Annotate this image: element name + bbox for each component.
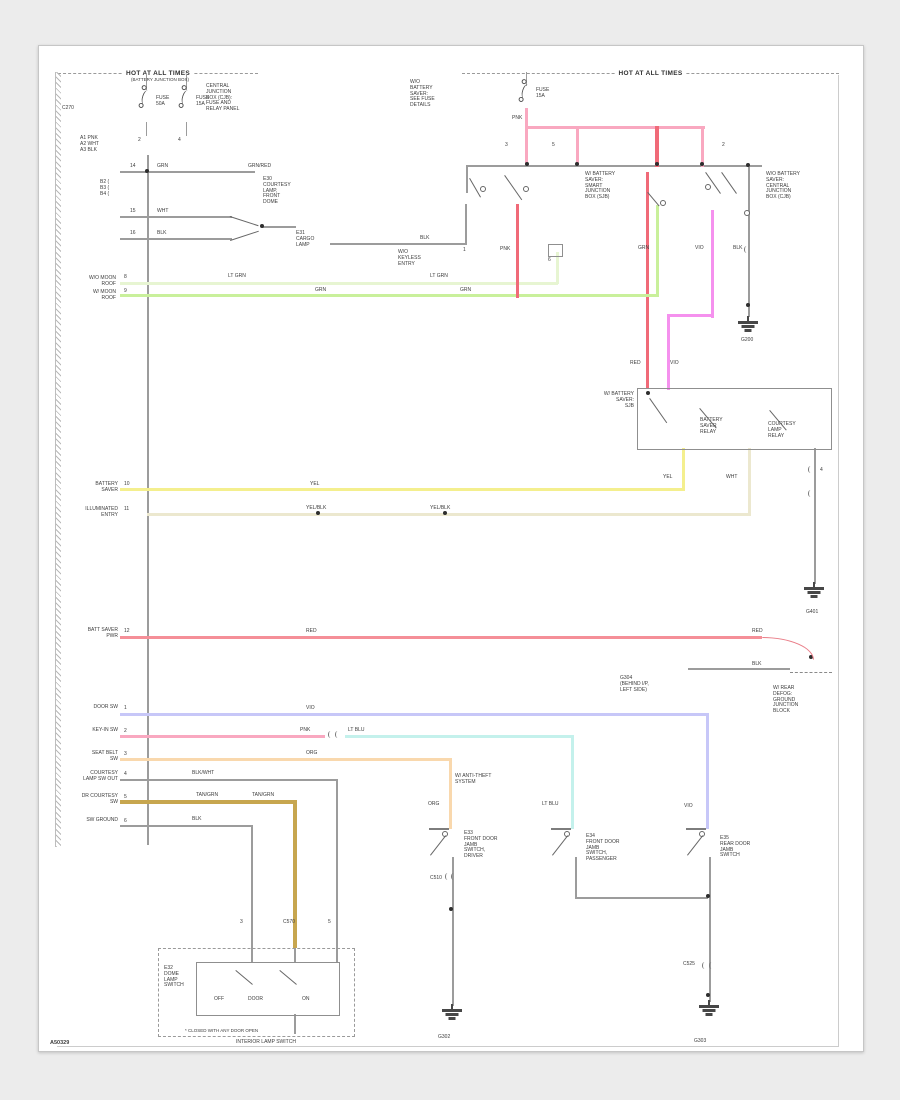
wire <box>576 126 579 165</box>
wire-label: 6 <box>124 819 127 825</box>
wire-label: GRN <box>157 164 168 170</box>
wire-label: 5 <box>328 920 331 926</box>
wire-label: RED <box>752 629 763 635</box>
junction-dot <box>443 511 447 515</box>
wire-label: 5 <box>552 143 555 149</box>
junction-dot <box>706 894 710 898</box>
wire-label: KEY-IN SW <box>56 728 118 734</box>
connector-mark <box>808 466 813 473</box>
wire-label: 15 <box>130 209 136 215</box>
wire-label: VIO <box>306 706 315 712</box>
wire <box>345 735 574 738</box>
wire-label: VIO <box>670 361 679 367</box>
wire <box>120 636 762 639</box>
wire <box>120 800 296 804</box>
connector-mark <box>335 731 340 738</box>
wire-label: 8 <box>124 275 127 281</box>
wire-label: C525 <box>683 962 695 968</box>
wire <box>466 165 762 167</box>
wire-label: DOOR <box>248 997 263 1003</box>
wire-label: FUSE 15A <box>536 88 549 100</box>
wire-label: 4 <box>124 772 127 778</box>
wire-label: 4 <box>178 138 181 144</box>
wire-label: BLK <box>192 817 201 823</box>
diagram-code: A50329 <box>50 1040 69 1046</box>
ground-icon <box>696 1000 722 1018</box>
ground-icon <box>801 582 827 600</box>
wire-label: E33 FRONT DOOR JAMB SWITCH, DRIVER <box>464 831 498 860</box>
wire-label: W/O BATTERY SAVER: SEE FUSE DETAILS <box>410 80 435 109</box>
wire-label: BLK <box>733 246 742 252</box>
door-jamb-switch-icon <box>429 828 457 858</box>
wire-label: LT GRN <box>430 274 448 280</box>
wire-label: G401 <box>806 610 818 616</box>
diagram-caption: INTERIOR LAMP SWITCH <box>196 1040 336 1046</box>
connector-mark <box>702 962 707 969</box>
wire <box>336 779 338 948</box>
wire-label: 2 <box>722 143 725 149</box>
junction-dot <box>525 162 529 166</box>
wire-label: TAN/GRN <box>196 793 218 799</box>
wire-label: DOOR SW <box>56 705 118 711</box>
wire <box>682 448 685 490</box>
wire <box>655 126 659 167</box>
wire-label: 9 <box>124 289 127 295</box>
wire <box>571 735 574 829</box>
junction-dot <box>655 162 659 166</box>
wire-label: GRN <box>315 288 326 294</box>
wire-label: W/ MOON ROOF <box>58 290 116 302</box>
wire <box>186 122 187 136</box>
wire-label: YEL <box>663 475 672 481</box>
wire-label: RED <box>306 629 317 635</box>
wire <box>465 204 467 245</box>
wire-label: ON <box>302 997 310 1003</box>
wire <box>120 171 255 173</box>
wire-label: G304 (BEHIND I/P, LEFT SIDE) <box>620 676 649 693</box>
terminal-pin <box>705 184 711 190</box>
wire-label: W/O BATTERY SAVER: CENTRAL JUNCTION BOX … <box>766 172 800 201</box>
wire-label: W/O MOON ROOF <box>58 276 116 288</box>
wire <box>330 243 466 245</box>
wire-label: LT GRN <box>228 274 246 280</box>
junction-dot <box>746 163 750 167</box>
connector-mark <box>328 731 333 738</box>
wire <box>466 165 468 193</box>
terminal-pin <box>660 200 666 206</box>
connector-mark <box>808 490 813 497</box>
wiring-diagram-page: HOT AT ALL TIMES HOT AT ALL TIMES (BATTE… <box>0 0 900 1100</box>
wire-label: ILLUMINATED ENTRY <box>56 507 118 519</box>
wire <box>147 155 149 845</box>
wire-label: G302 <box>438 1035 450 1041</box>
wire-label: W/O KEYLESS ENTRY <box>398 250 421 267</box>
hidden-wire-dash <box>790 672 832 673</box>
wire-label: 3 <box>505 143 508 149</box>
wire-label: WHT <box>157 209 168 215</box>
wire-label: (BATTERY JUNCTION BOX) <box>105 77 215 82</box>
wire <box>120 713 709 716</box>
wire <box>147 513 751 516</box>
wire-label: GRN <box>460 288 471 294</box>
wire-label: BLK <box>157 231 166 237</box>
ground-icon <box>439 1004 465 1022</box>
wire-label: G303 <box>694 1039 706 1045</box>
wire-label: E30 COURTESY LAMP, FRONT DOME <box>263 177 291 206</box>
wire-label: COURTESY LAMP SW OUT <box>50 771 118 783</box>
wire-label: E34 FRONT DOOR JAMB SWITCH, PASSENGER <box>586 834 620 863</box>
wire-label: VIO <box>695 246 704 252</box>
wire-label: 10 <box>124 482 130 488</box>
wire <box>120 216 232 218</box>
junction-dot <box>316 511 320 515</box>
junction-dot <box>575 162 579 166</box>
wire-label: PNK <box>500 247 510 253</box>
wire <box>120 735 325 738</box>
wire-label: C570 <box>283 920 295 926</box>
wire-label: SEAT BELT SW <box>54 751 118 763</box>
terminal-pin <box>480 186 486 192</box>
wire <box>701 126 704 167</box>
wire <box>120 238 232 240</box>
wire-label: PNK <box>512 116 522 122</box>
wire-label: BLK <box>752 662 761 668</box>
wire-label: 2 <box>138 138 141 144</box>
wire <box>575 897 708 899</box>
wire-label: 4 <box>820 468 823 474</box>
terminal-pin <box>744 210 750 216</box>
junction-dot <box>260 224 264 228</box>
wire <box>706 713 709 829</box>
wire-label: VIO <box>684 804 693 810</box>
wire <box>449 758 452 829</box>
wire-label: 16 <box>130 231 136 237</box>
wire <box>748 167 750 317</box>
component-box <box>637 388 832 450</box>
wire <box>120 282 558 285</box>
junction-dot <box>700 162 704 166</box>
wire <box>120 779 338 781</box>
wire-label: A1 PNK A2 WHT A3 BLK <box>80 136 99 153</box>
component-box <box>548 244 563 257</box>
junction-dot <box>646 391 650 395</box>
wire <box>120 758 452 761</box>
header-left-hot-bus: HOT AT ALL TIMES <box>58 73 258 74</box>
wire <box>575 857 577 899</box>
wire-label: E32 DOME LAMP SWITCH <box>164 966 184 989</box>
wire-label: LT BLU <box>348 728 365 734</box>
wire <box>748 448 751 515</box>
door-jamb-switch-icon <box>551 828 579 858</box>
wire-label: LT BLU <box>542 802 559 808</box>
wire-label: GRN/RED <box>248 164 271 170</box>
wire-label: RED <box>630 361 641 367</box>
connector-mark <box>709 962 714 969</box>
wire-label: 14 <box>130 164 136 170</box>
junction-dot <box>706 993 710 997</box>
wire-label: 1 <box>463 248 466 254</box>
wire-label: ORG <box>428 802 439 808</box>
wire-label: BATTERY SAVER <box>56 482 118 494</box>
wire-label: C270 <box>62 106 74 112</box>
wire-label: E35 REAR DOOR JAMB SWITCH <box>720 836 750 859</box>
ground-icon <box>735 316 761 334</box>
wire-label: WHT <box>726 475 737 481</box>
wire <box>262 226 296 228</box>
wire <box>667 314 670 390</box>
wire-label: 11 <box>124 507 129 513</box>
wire-label: 3 <box>124 752 127 758</box>
wire <box>525 126 528 165</box>
wire-label: 3 <box>240 920 243 926</box>
wire-label: 12 <box>124 629 130 635</box>
wire-label: B2 ( B3 ( B4 ( <box>100 180 109 197</box>
wire <box>525 108 528 128</box>
wire-label: 2 <box>124 729 127 735</box>
wire <box>668 314 714 317</box>
wire-label: YEL/BLK <box>430 506 450 512</box>
component-box <box>196 962 340 1016</box>
connector-mark <box>744 246 749 253</box>
wire-label: W/ REAR DEFOG: GROUND JUNCTION BLOCK <box>773 686 798 715</box>
wire-label: 5 <box>124 795 127 801</box>
header-right-hot-bus: HOT AT ALL TIMES <box>462 73 839 74</box>
junction-dot <box>145 169 149 173</box>
wire-label: 6 <box>548 258 551 264</box>
wire <box>656 205 659 297</box>
wire-label: BATT SAVER PWR <box>54 628 118 640</box>
wire <box>646 172 649 388</box>
wire-label: C510 <box>430 876 442 882</box>
header-right-title: HOT AT ALL TIMES <box>615 70 685 77</box>
wire <box>525 126 705 129</box>
wire <box>146 122 147 136</box>
junction-dot <box>449 907 453 911</box>
wire-label: W/ BATTERY SAVER: SMART JUNCTION BOX (SJ… <box>585 172 615 201</box>
connector-mark <box>451 873 456 880</box>
wire <box>120 294 659 297</box>
wire-label: FUSE 50A <box>156 96 169 108</box>
junction-dot <box>746 303 750 307</box>
wire <box>688 668 790 670</box>
wire-label: YEL <box>310 482 319 488</box>
connector-mark <box>445 873 450 880</box>
wire-label: * CLOSED WITH ANY DOOR OPEN <box>185 1028 258 1033</box>
wire <box>814 448 816 584</box>
wire-label: W/ BATTERY SAVER: SJB <box>578 392 634 409</box>
wire-label: TAN/GRN <box>252 793 274 799</box>
wire-label: PNK <box>300 728 310 734</box>
wire <box>516 204 519 298</box>
wire-label: W/ ANTI-THEFT SYSTEM <box>455 774 491 786</box>
wire <box>293 800 297 948</box>
door-jamb-switch-icon <box>686 828 714 858</box>
wire <box>57 1046 839 1047</box>
wire-label: E31 CARGO LAMP <box>296 231 314 248</box>
wire-label: SW GROUND <box>50 818 118 824</box>
wire <box>711 210 714 318</box>
header-left-title: HOT AT ALL TIMES <box>123 70 193 77</box>
wire <box>251 825 253 948</box>
wire <box>838 75 839 1046</box>
wire-label: G200 <box>741 338 753 344</box>
wire-label: BLK <box>420 236 429 242</box>
wire <box>709 857 711 1002</box>
wire-label: CENTRAL JUNCTION BOX (CJB): FUSE AND REL… <box>206 84 239 113</box>
wire <box>120 825 253 827</box>
wire-label: ORG <box>306 751 317 757</box>
wire <box>120 488 685 491</box>
terminal-pin <box>523 186 529 192</box>
wire-label: DR COURTESY SW <box>50 794 118 806</box>
diagram-sheet <box>38 45 864 1052</box>
wire-label: OFF <box>214 997 224 1003</box>
wire-label: GRN <box>638 246 649 252</box>
wire-label: 1 <box>124 706 127 712</box>
wire-label: BLK/WHT <box>192 771 214 777</box>
